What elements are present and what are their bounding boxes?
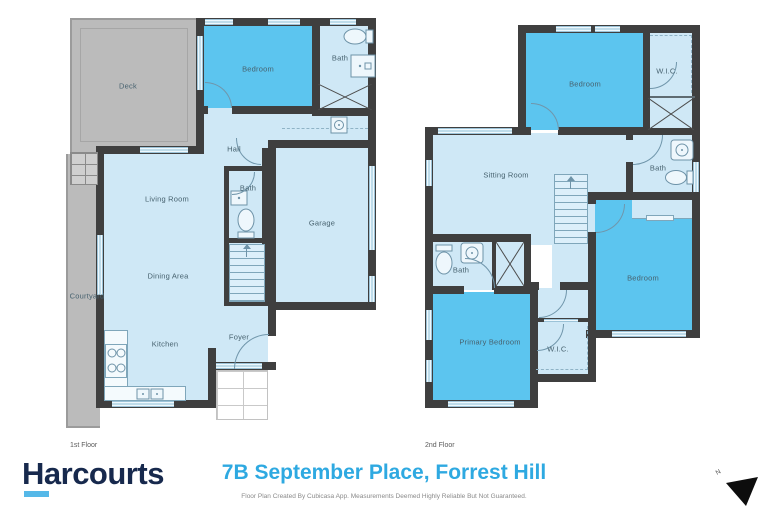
room-label-dining-area: Dining Area [148,272,189,281]
toilet-icon [664,169,694,186]
wall [208,348,216,408]
wall [588,232,596,382]
stairs [229,244,265,302]
room-label-bath: Bath [332,54,348,63]
wall [518,127,531,135]
window [330,19,356,25]
room-label-hall: Hall [227,145,241,154]
window [426,160,432,186]
stairs-up-arrowhead [567,176,575,181]
room-label-deck: Deck [119,82,137,91]
window [268,19,300,25]
window [448,401,514,407]
window [112,401,174,407]
wall [588,192,596,204]
floor-label-first: 1st Floor [70,442,97,449]
room-label-garage: Garage [309,219,335,228]
room-label-bedroom: Bedroom [242,65,274,74]
room-label-wic: W.I.C. [547,345,569,354]
harcourts-logo-underline [24,491,49,497]
wall [425,286,464,294]
stairs [554,174,588,244]
wall [518,25,526,135]
disclaimer-text: Floor Plan Created By Cubicasa App. Meas… [0,493,768,500]
window [544,319,578,322]
window [369,166,375,250]
window [438,128,512,134]
wall [272,140,376,148]
window [595,26,620,32]
shower-area [648,98,694,130]
room-label-bath: Bath [240,184,256,193]
sink-icon [670,139,694,161]
shower-area [318,84,372,110]
window [426,310,432,340]
window [556,26,591,32]
wall [268,302,376,310]
window [140,147,188,153]
courtyard-steps [70,152,98,185]
stove-icon [105,344,127,378]
room-label-foyer: Foyer [229,333,249,342]
entry-steps [216,370,268,420]
room-label-sitting-room: Sitting Room [483,171,528,180]
room-label-living-room: Living Room [145,195,189,204]
wall [626,162,633,195]
window [197,36,203,90]
room-label-kitchen: Kitchen [152,340,178,349]
compass-arrow-icon [716,470,762,510]
room-label-primary-bedroom: Primary Bedroom [459,338,520,347]
window [612,331,686,337]
shower-area [496,242,524,286]
hall-dashed-line [282,128,368,129]
kitchen-sink-icon [136,388,164,400]
floor-label-second: 2nd Floor [425,442,455,449]
toilet-icon [434,244,454,278]
wall [560,282,594,290]
wall [530,374,596,382]
wall [590,192,700,200]
window [205,19,233,25]
wall [626,128,633,140]
wall [643,25,650,98]
sliding-door [97,235,103,295]
room-label-bedroom: Bedroom [627,274,659,283]
stairs-up-arrowhead [243,244,251,249]
harcourts-logo: Harcourts [22,456,164,492]
room-label-bath: Bath [650,164,666,173]
window [369,276,375,302]
window [426,360,432,382]
floor-plan-sheet: Deck Bedroom Bath Hall Living Room Bath … [0,0,768,512]
wall [232,106,320,114]
closet-slider-door [646,215,674,221]
room-label-courtyard: Courtyard [70,292,105,301]
room-label-wic: W.I.C. [656,67,678,76]
toilet-icon [342,28,374,45]
room-label-bath: Bath [453,266,469,275]
toilet-icon [236,208,256,240]
washer-icon [330,116,348,134]
primary-bedroom-floor [430,292,532,404]
room-label-bedroom: Bedroom [569,80,601,89]
sink-icon [350,54,376,78]
wall [268,302,276,336]
